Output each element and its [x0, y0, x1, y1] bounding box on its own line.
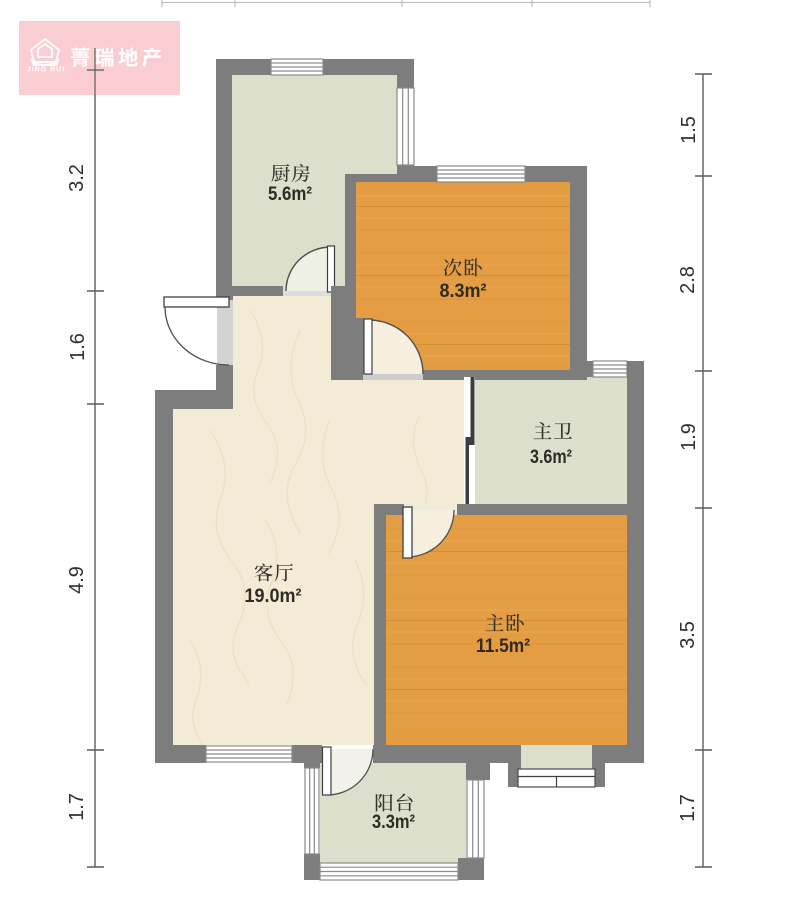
svg-text:8.3m²: 8.3m²	[440, 280, 487, 302]
svg-text:4.9: 4.9	[66, 566, 88, 594]
svg-text:3.5: 3.5	[677, 621, 699, 649]
svg-text:2.8: 2.8	[677, 266, 699, 294]
svg-text:3.6m²: 3.6m²	[530, 446, 572, 468]
svg-text:JING RUI: JING RUI	[27, 67, 65, 74]
svg-text:1.7: 1.7	[677, 794, 699, 822]
svg-text:11.5m²: 11.5m²	[476, 635, 530, 657]
svg-text:1.5: 1.5	[678, 116, 700, 144]
svg-text:1.7: 1.7	[66, 793, 88, 821]
svg-text:19.0m²: 19.0m²	[245, 585, 302, 607]
svg-text:1.9: 1.9	[678, 423, 700, 451]
svg-text:5.6m²: 5.6m²	[268, 183, 312, 205]
svg-text:3.2: 3.2	[66, 164, 88, 192]
svg-text:1.6: 1.6	[67, 333, 89, 361]
svg-text:3.3m²: 3.3m²	[372, 811, 415, 833]
